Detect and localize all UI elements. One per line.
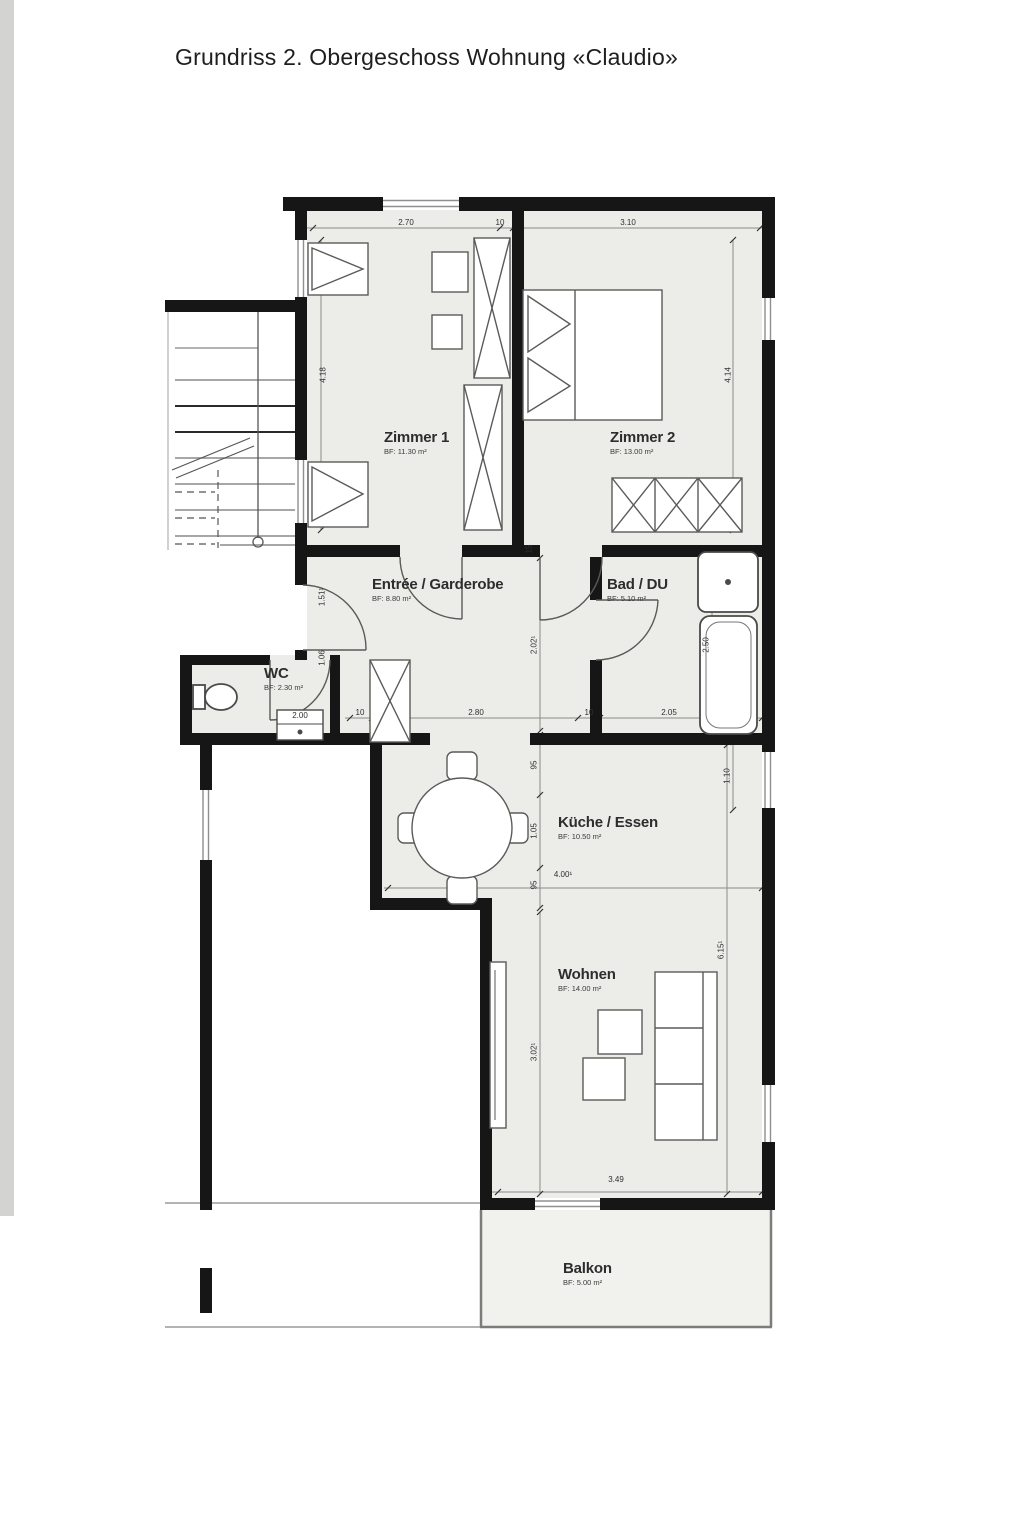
dimension-label: 4.18 bbox=[319, 367, 328, 383]
dimension-label: 3.10 bbox=[620, 218, 636, 227]
entree-furniture bbox=[370, 660, 410, 742]
room-label-zimmer1: Zimmer 1 BF: 11.30 m² bbox=[384, 430, 449, 456]
dimension-label: 2.70 bbox=[398, 218, 414, 227]
dimension-label: 3.49 bbox=[608, 1175, 624, 1184]
dimension-label: 1.06 bbox=[318, 650, 327, 666]
coffee-table bbox=[598, 1010, 642, 1054]
dimension-label: 2.00 bbox=[292, 711, 308, 720]
side-table bbox=[583, 1058, 625, 1100]
bathtub bbox=[700, 616, 757, 734]
toilet-tank bbox=[193, 685, 205, 709]
dimension-label: 2.02¹ bbox=[530, 636, 539, 654]
dimension-label: 3.02¹ bbox=[530, 1043, 539, 1061]
dimension-label: 1.05 bbox=[530, 823, 539, 839]
floorplan-drawing bbox=[0, 0, 1024, 1536]
floorplan-page: Grundriss 2. Obergeschoss Wohnung «Claud… bbox=[0, 0, 1024, 1536]
dimension-label: 10 bbox=[496, 218, 505, 227]
dimension-label: 6.15¹ bbox=[717, 941, 726, 959]
dimension-label: 2.50 bbox=[702, 637, 711, 653]
dimension-label: 15 bbox=[525, 545, 534, 554]
room-label-entree: Entrée / Garderobe BF: 8.80 m² bbox=[372, 577, 503, 603]
dimension-label: 95 bbox=[530, 761, 539, 770]
site-lines bbox=[165, 1203, 480, 1327]
room-label-balkon: Balkon BF: 5.00 m² bbox=[563, 1261, 612, 1287]
dimension-label: 4.00¹ bbox=[554, 870, 572, 879]
sideboard bbox=[490, 962, 506, 1128]
stairs bbox=[168, 302, 295, 550]
room-label-wc: WC BF: 2.30 m² bbox=[264, 666, 303, 692]
dimension-label: 10 bbox=[585, 708, 594, 717]
room-label-wohnen: Wohnen BF: 14.00 m² bbox=[558, 967, 616, 993]
room-label-zimmer2: Zimmer 2 BF: 13.00 m² bbox=[610, 430, 675, 456]
dimension-label: 4.14 bbox=[724, 367, 733, 383]
dimension-label: 10 bbox=[356, 708, 365, 717]
room-label-bad: Bad / DU BF: 5.10 m² bbox=[607, 577, 668, 603]
dimension-label: 2.05 bbox=[661, 708, 677, 717]
bed bbox=[523, 290, 662, 420]
dimension-label: 95 bbox=[530, 881, 539, 890]
dimension-label: 1.51¹ bbox=[318, 588, 327, 606]
dimension-label: 1.10 bbox=[723, 768, 732, 784]
toilet bbox=[205, 684, 237, 710]
dining-table bbox=[412, 778, 512, 878]
sofa bbox=[655, 972, 717, 1140]
room-label-kueche: Küche / Essen BF: 10.50 m² bbox=[558, 815, 658, 841]
dimension-label: 2.80 bbox=[468, 708, 484, 717]
